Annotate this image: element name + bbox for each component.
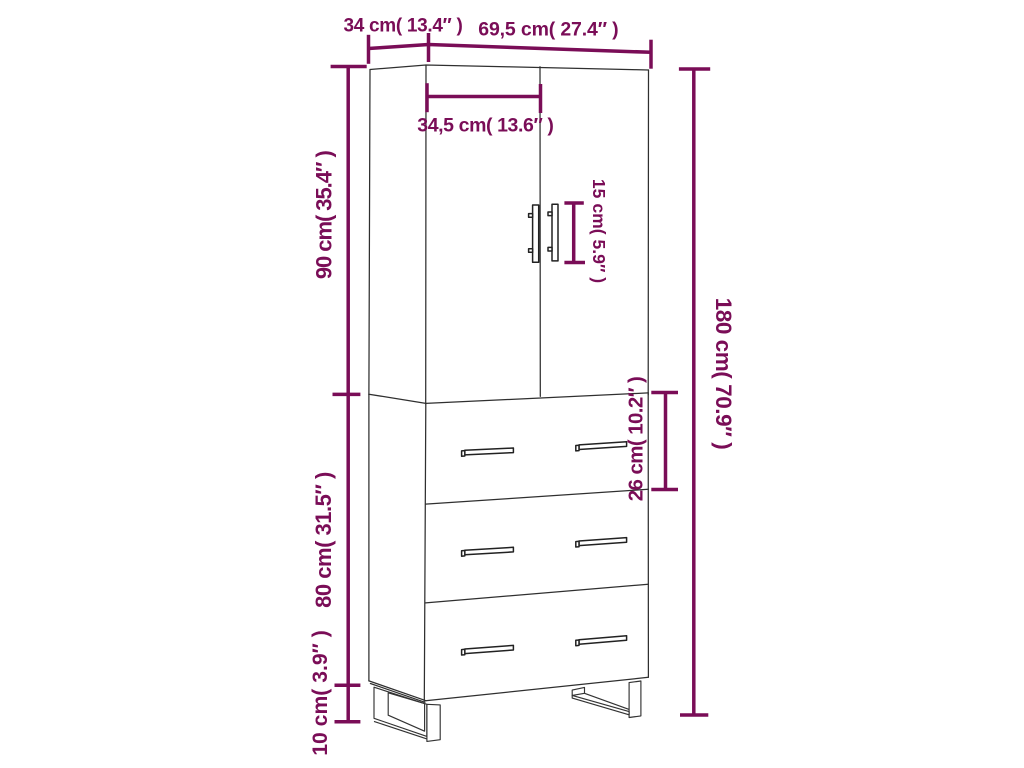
svg-text:34 cm( 13.4″ ): 34 cm( 13.4″ ) bbox=[344, 16, 463, 37]
svg-text:80 cm( 31.5″ ): 80 cm( 31.5″ ) bbox=[311, 472, 336, 608]
svg-text:26 cm( 10.2″ ): 26 cm( 10.2″ ) bbox=[624, 377, 647, 502]
svg-text:180 cm( 70.9″ ): 180 cm( 70.9″ ) bbox=[711, 298, 736, 450]
svg-text:34,5 cm( 13.6″ ): 34,5 cm( 13.6″ ) bbox=[417, 115, 553, 137]
svg-text:10 cm( 3.9″ ): 10 cm( 3.9″ ) bbox=[309, 630, 332, 756]
svg-text:69,5 cm( 27.4″ ): 69,5 cm( 27.4″ ) bbox=[478, 18, 618, 40]
svg-text:90 cm( 35.4″ ): 90 cm( 35.4″ ) bbox=[312, 151, 337, 280]
svg-text:15 cm( 5.9″ ): 15 cm( 5.9″ ) bbox=[589, 179, 609, 283]
